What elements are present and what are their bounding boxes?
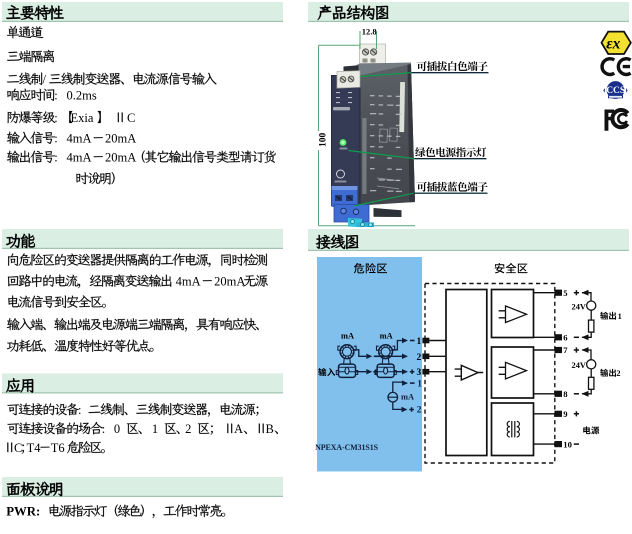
svg-text:2: 2	[417, 353, 422, 363]
svg-text:NPEXA-CM31S1S: NPEXA-CM31S1S	[315, 443, 379, 452]
svg-text::: :	[102, 422, 105, 436]
svg-text:T4: T4	[27, 441, 42, 455]
svg-text:1: 1	[618, 312, 622, 321]
svg-text:4mA: 4mA	[67, 132, 92, 146]
svg-text::: :	[54, 132, 57, 146]
svg-text:1: 1	[417, 379, 422, 389]
svg-text:100: 100	[319, 133, 329, 148]
svg-text:C: C	[14, 441, 22, 455]
svg-text:9: 9	[563, 409, 567, 419]
svg-text:CCS: CCS	[606, 86, 625, 96]
svg-text:Exia: Exia	[71, 111, 94, 125]
svg-text:T6: T6	[51, 441, 65, 455]
svg-text:3: 3	[417, 368, 422, 378]
svg-text:12.8: 12.8	[362, 27, 377, 37]
svg-text:mA: mA	[380, 332, 393, 341]
svg-text:20mA: 20mA	[105, 132, 136, 146]
svg-text:24V: 24V	[572, 302, 586, 311]
svg-text:0: 0	[114, 422, 120, 436]
svg-text:10: 10	[563, 439, 572, 449]
svg-text:PWR:: PWR:	[6, 505, 40, 519]
svg-text:A: A	[234, 422, 243, 436]
svg-text::: :	[54, 111, 57, 125]
svg-text::: :	[78, 403, 81, 417]
svg-text:1: 1	[417, 337, 422, 347]
svg-text:mA: mA	[401, 392, 414, 401]
svg-text:6: 6	[563, 333, 568, 343]
svg-text:8: 8	[563, 389, 568, 399]
svg-text:/: /	[43, 73, 47, 87]
svg-text:20mA: 20mA	[105, 151, 136, 165]
svg-text:24V: 24V	[572, 361, 586, 370]
svg-text:0.2ms: 0.2ms	[67, 89, 97, 103]
svg-text:4mA: 4mA	[176, 275, 201, 289]
svg-text:5: 5	[563, 288, 567, 298]
svg-text::: :	[54, 89, 57, 103]
svg-text:2: 2	[616, 369, 620, 378]
svg-text:2: 2	[417, 406, 422, 416]
svg-text:20mA: 20mA	[214, 275, 245, 289]
svg-text:C: C	[127, 111, 135, 125]
svg-text::: :	[54, 151, 57, 165]
svg-text:1: 1	[152, 422, 158, 436]
svg-text:2: 2	[185, 422, 191, 436]
svg-text:7: 7	[563, 345, 568, 355]
svg-text:B: B	[266, 422, 274, 436]
svg-text:4mA: 4mA	[67, 151, 92, 165]
svg-text:mA: mA	[341, 332, 354, 341]
svg-text:εx: εx	[606, 36, 620, 53]
